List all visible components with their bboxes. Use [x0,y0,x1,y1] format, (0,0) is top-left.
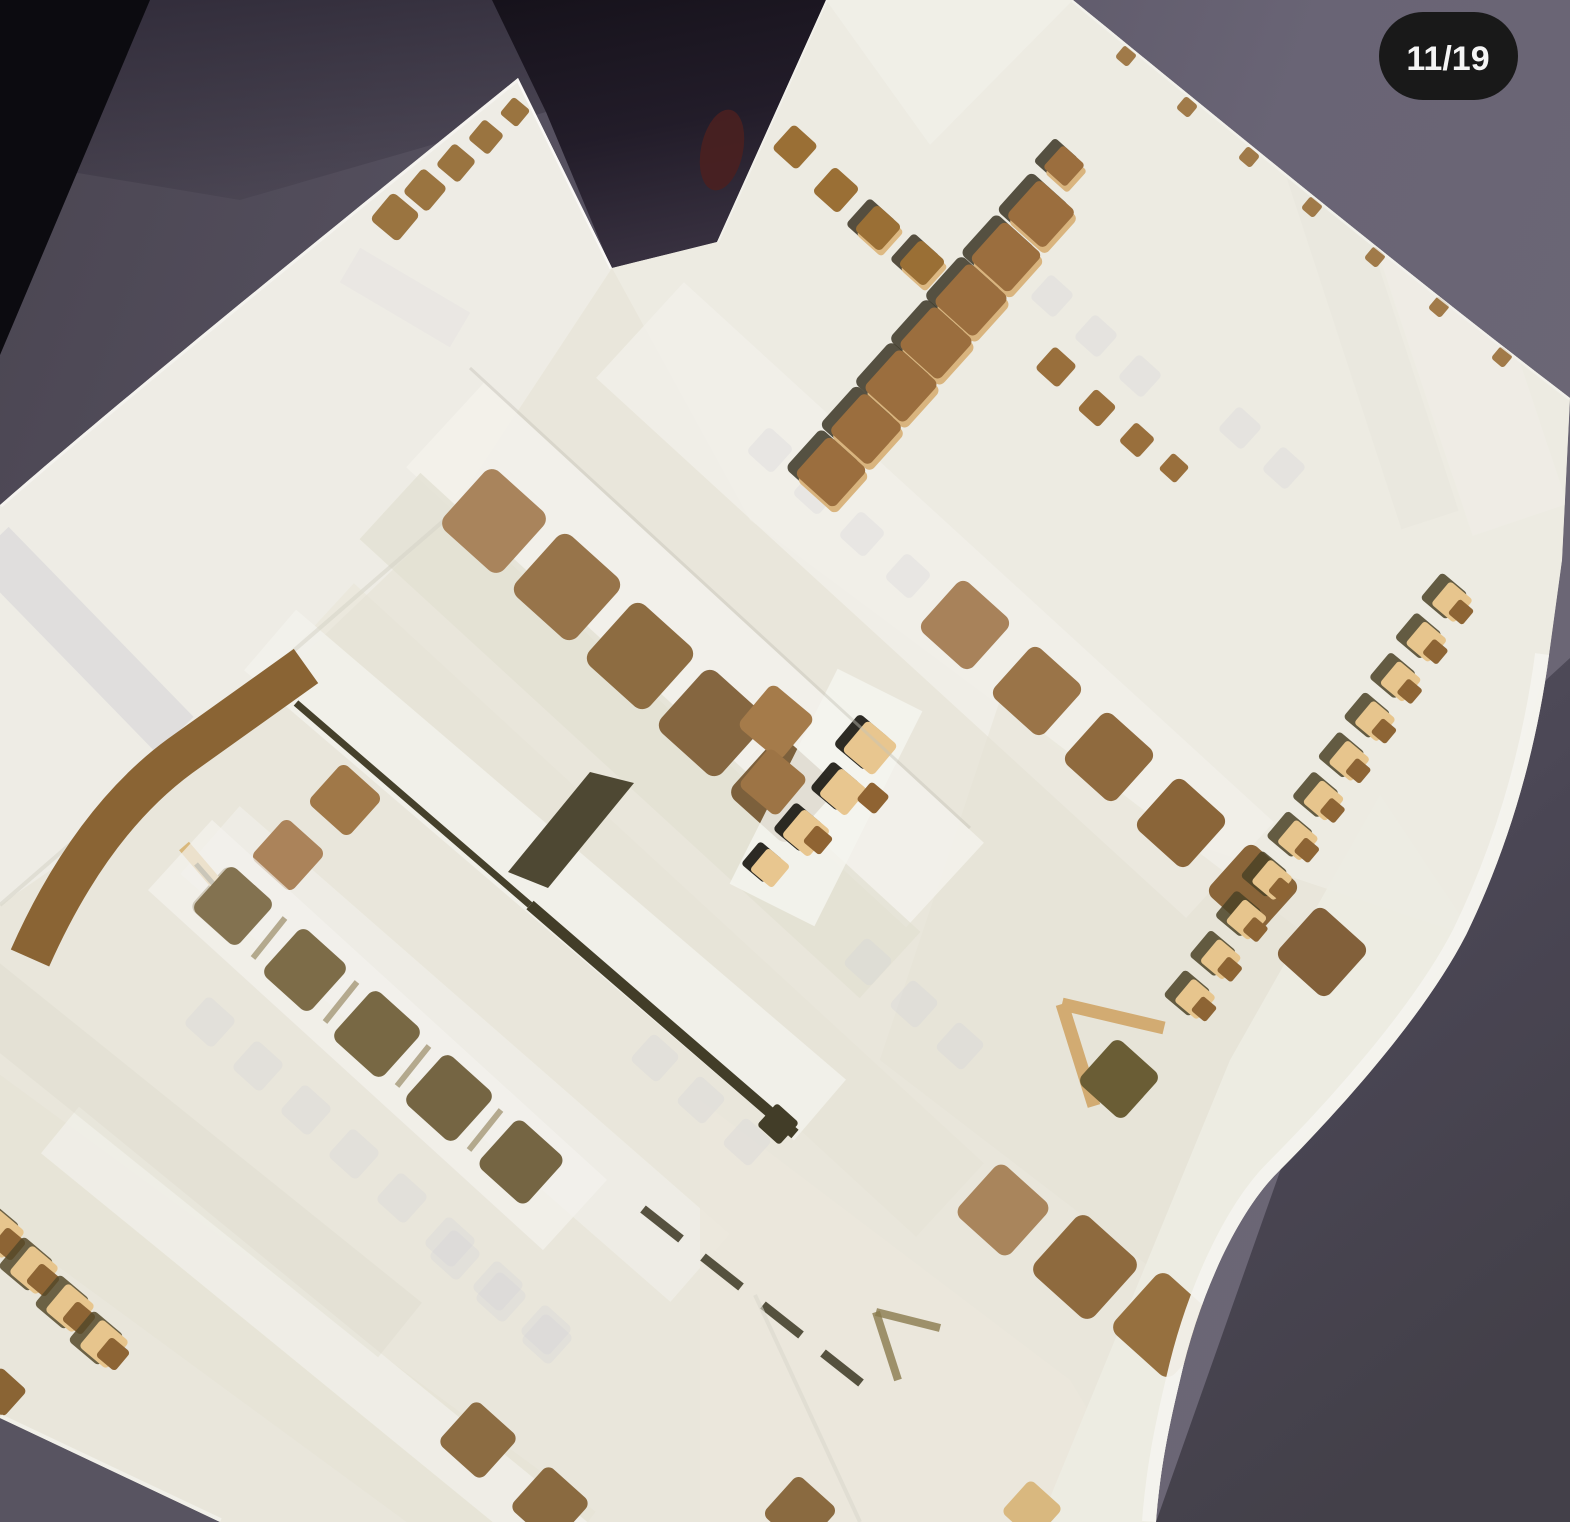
svg-text:11/19: 11/19 [1406,40,1489,78]
